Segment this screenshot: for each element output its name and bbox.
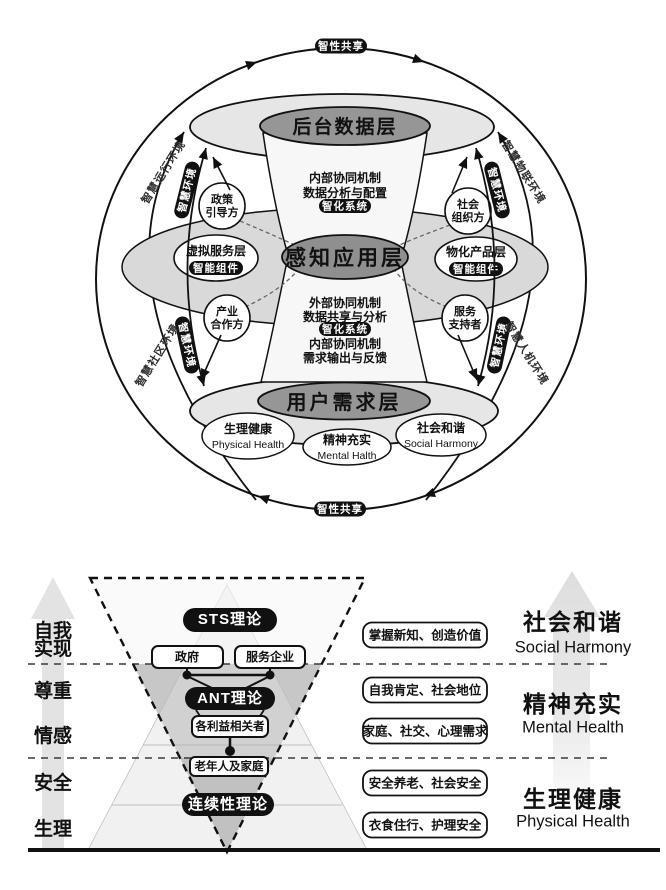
outcome-mental-health: 精神充实 Mental Health [522,691,624,737]
svg-text:各利益相关者: 各利益相关者 [195,719,265,733]
svg-text:尊重: 尊重 [34,679,72,702]
svg-text:智能组件: 智能组件 [452,263,499,276]
perception-app-layer-label: 感知应用层 [285,246,405,270]
svg-text:连续性理论: 连续性理论 [188,795,268,813]
virtual-service-layer: 虚拟服务层 智能组件 [174,235,258,281]
svg-text:生理: 生理 [34,817,72,840]
svg-text:智慧物联环境: 智慧物联环境 [499,138,549,206]
svg-text:服务企业: 服务企业 [246,649,294,664]
env-pill-tl: 智慧环境 [173,160,202,220]
svg-text:内部协同机制: 内部协同机制 [309,170,381,185]
svg-text:智慧社区环境: 智慧社区环境 [132,321,182,389]
svg-text:ANT理论: ANT理论 [197,689,263,707]
svg-text:服务: 服务 [454,304,477,318]
network-node-dot [225,746,235,756]
svg-text:老年人及家庭: 老年人及家庭 [194,759,264,773]
svg-text:Mental Halth: Mental Halth [318,450,377,462]
smart-eldercare-sphere-diagram: 后台数据层 感知应用层 用户需求层 虚拟服务层 智能组件 物化产品层 智能组件 … [0,0,666,555]
need-box-2: 自我肯定、社会地位 [363,678,487,703]
network-node-dot [183,671,192,680]
service-supporter-circle: 服务 支持者 [442,295,488,341]
svg-text:需求输出与反馈: 需求输出与反馈 [303,350,387,365]
cycle-pill-bottom: 智性共享 [314,502,366,517]
industry-partner-circle: 产业 合作方 [204,295,250,341]
elderly-family-box: 老年人及家庭 [190,757,268,776]
need-box-1: 掌握新知、创造价值 [363,623,487,648]
env-label-tr: 智慧物联环境 [499,138,549,206]
outcome-social-harmony: 社会和谐 Social Harmony [515,609,632,657]
svg-text:掌握新知、创造价值: 掌握新知、创造价值 [369,628,482,643]
stakeholders-box: 各利益相关者 [192,716,268,737]
svg-text:情感: 情感 [34,724,72,747]
sts-theory-pill: STS理论 [183,608,277,632]
svg-text:组织方: 组织方 [452,210,485,224]
svg-text:社会和谐: 社会和谐 [416,420,465,435]
needs-pyramid-diagram: STS理论 政府 服务企业 ANT理论 各利益 [0,555,666,890]
user-demand-layer-label: 用户需求层 [287,390,402,414]
svg-text:Mental Health: Mental Health [522,719,624,737]
cycle-pill-top: 智性共享 [315,39,367,54]
svg-text:外部协同机制: 外部协同机制 [309,295,381,310]
policy-guide-circle: 政策 引导方 [199,183,245,229]
svg-text:政府: 政府 [175,649,199,664]
svg-text:合作方: 合作方 [211,317,244,331]
env-pill-bl: 智慧环境 [174,315,201,375]
svg-text:Physical Health: Physical Health [516,813,630,831]
need-box-4: 安全养老、社会安全 [363,771,487,796]
svg-text:内部协同机制: 内部协同机制 [309,336,381,351]
need-box-3: 家庭、社交、心理需求 [362,719,488,744]
svg-text:物化产品层: 物化产品层 [446,244,506,259]
svg-text:智性共享: 智性共享 [317,40,364,53]
svg-text:智慧人机环境: 智慧人机环境 [502,319,552,387]
government-box: 政府 [152,646,223,668]
svg-text:智化系统: 智化系统 [321,323,368,336]
svg-text:引导方: 引导方 [206,205,239,219]
svg-text:生理健康: 生理健康 [224,421,273,436]
need-mental-health: 精神充实 Mental Halth [303,429,391,465]
svg-text:家庭、社交、心理需求: 家庭、社交、心理需求 [362,724,488,739]
svg-text:衣食住行、护理安全: 衣食住行、护理安全 [369,818,482,833]
svg-text:Physical Health: Physical Health [212,439,285,451]
service-enterprise-box: 服务企业 [235,646,305,668]
svg-text:智化系统: 智化系统 [321,200,368,213]
social-org-circle: 社会 组织方 [445,188,491,234]
svg-text:安全养老、社会安全: 安全养老、社会安全 [369,776,482,791]
continuity-theory-pill: 连续性理论 [182,793,274,816]
env-label-br: 智慧人机环境 [502,319,552,387]
svg-text:虚拟服务层: 虚拟服务层 [186,243,246,258]
svg-text:社会: 社会 [456,197,480,211]
svg-text:生理健康: 生理健康 [523,786,623,812]
svg-text:产业: 产业 [216,304,238,318]
ant-theory-pill: ANT理论 [185,687,275,710]
page: 后台数据层 感知应用层 用户需求层 虚拟服务层 智能组件 物化产品层 智能组件 … [0,0,666,890]
svg-text:实现: 实现 [34,637,72,660]
need-physical-health: 生理健康 Physical Health [202,413,294,459]
backend-data-layer-label: 后台数据层 [292,115,397,138]
env-label-bl: 智慧社区环境 [132,321,182,389]
svg-text:STS理论: STS理论 [198,610,262,628]
need-social-harmony: 社会和谐 Social Harmony [396,414,486,456]
maslow-up-arrow-icon [31,577,75,849]
svg-text:政策: 政策 [211,192,234,206]
svg-text:智能组件: 智能组件 [192,262,239,275]
svg-text:数据分析与配置: 数据分析与配置 [303,185,387,200]
svg-text:精神充实: 精神充实 [323,432,371,447]
svg-text:智性共享: 智性共享 [316,503,363,516]
physical-product-layer: 物化产品层 智能组件 [435,237,517,281]
svg-text:自我肯定、社会地位: 自我肯定、社会地位 [369,683,482,698]
svg-text:社会和谐: 社会和谐 [523,609,623,635]
svg-text:支持者: 支持者 [448,317,482,331]
outcome-physical-health: 生理健康 Physical Health [516,786,630,831]
svg-text:Social Harmony: Social Harmony [515,639,632,657]
svg-text:精神充实: 精神充实 [523,691,623,717]
need-box-5: 衣食住行、护理安全 [363,813,487,838]
network-node-dot [266,671,275,680]
outcome-up-arrow-icon [544,571,600,805]
baseline [28,848,660,852]
svg-text:安全: 安全 [34,771,73,794]
svg-text:Social Harmony: Social Harmony [404,438,479,450]
svg-text:数据共享与分析: 数据共享与分析 [303,309,387,324]
